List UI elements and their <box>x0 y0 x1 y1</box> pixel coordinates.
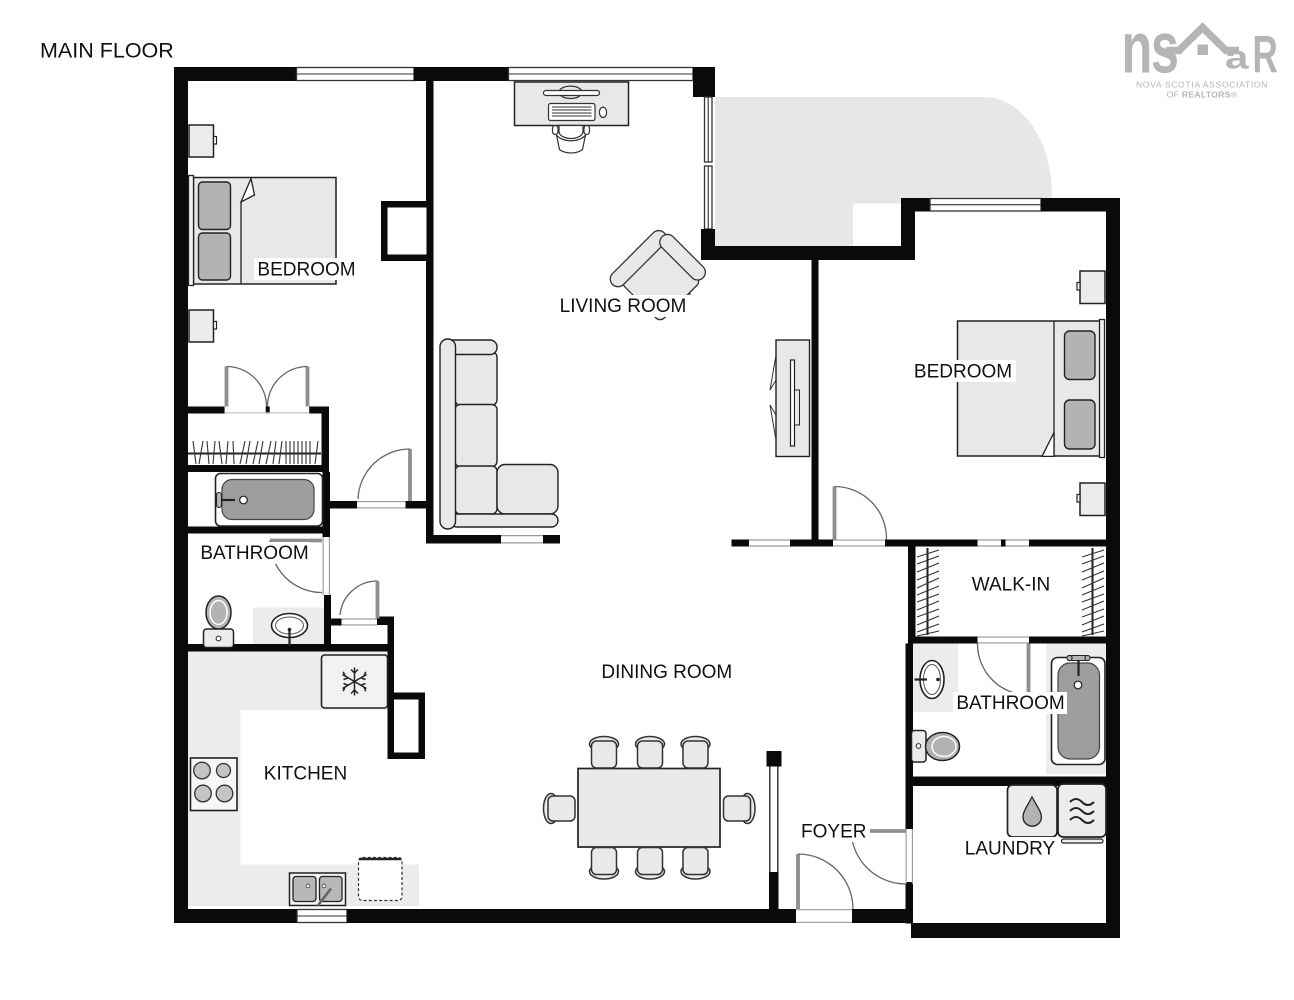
svg-text:BEDROOM: BEDROOM <box>257 260 355 281</box>
svg-text:BEDROOM: BEDROOM <box>914 362 1012 383</box>
svg-text:KITCHEN: KITCHEN <box>264 764 347 785</box>
svg-text:BATHROOM: BATHROOM <box>200 543 308 564</box>
svg-text:MAIN FLOOR: MAIN FLOOR <box>40 39 174 63</box>
svg-text:WALK-IN: WALK-IN <box>972 575 1050 596</box>
svg-text:OF REALTORS®: OF REALTORS® <box>1167 90 1238 100</box>
svg-text:BATHROOM: BATHROOM <box>956 693 1064 714</box>
svg-text:a: a <box>1225 40 1250 77</box>
svg-text:LIVING ROOM: LIVING ROOM <box>560 296 687 317</box>
svg-text:NOVA SCOTIA ASSOCIATION: NOVA SCOTIA ASSOCIATION <box>1136 80 1268 90</box>
svg-text:LAUNDRY: LAUNDRY <box>965 839 1056 860</box>
svg-text:DINING ROOM: DINING ROOM <box>601 662 732 683</box>
svg-text:R: R <box>1253 24 1278 84</box>
svg-text:FOYER: FOYER <box>801 822 866 843</box>
